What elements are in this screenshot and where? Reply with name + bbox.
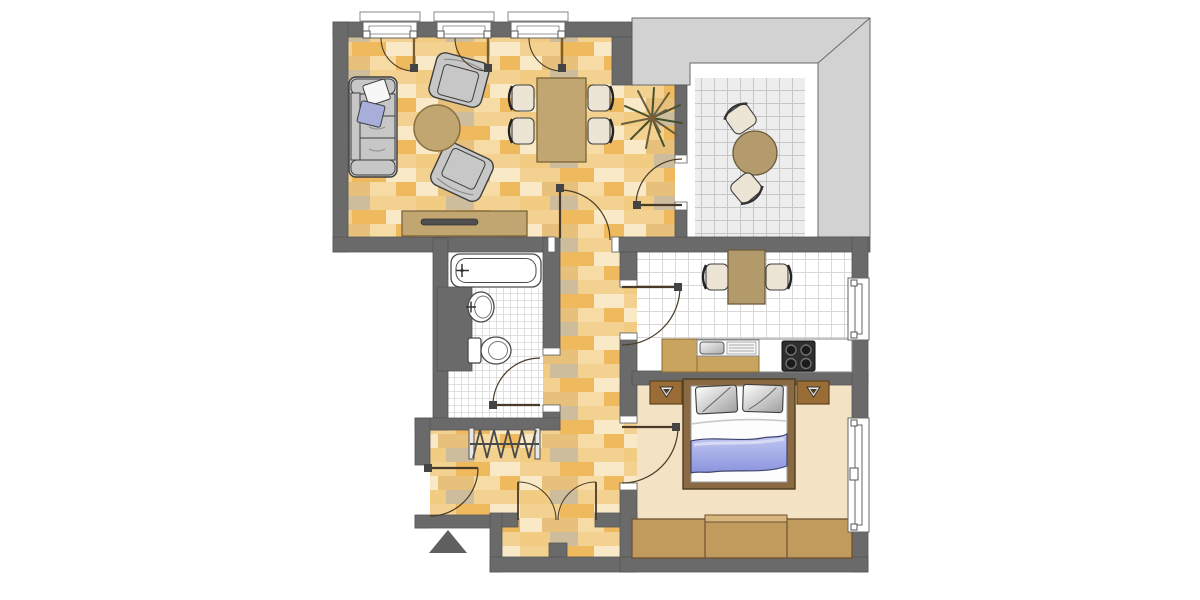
living-room-nook-floor — [612, 85, 675, 237]
sideboard — [402, 211, 527, 236]
window-kitchen — [848, 278, 869, 340]
dining-chair — [509, 118, 534, 144]
entrance-arrow-icon — [429, 530, 467, 553]
balcony-table — [733, 131, 777, 175]
bathroom-door-threshold — [543, 355, 560, 405]
wall-living-west — [333, 22, 348, 252]
living-room-door-threshold — [555, 237, 612, 252]
window-bedroom — [848, 418, 869, 532]
coffee-table — [414, 105, 460, 151]
wardrobe — [632, 515, 852, 558]
bed-pillow — [743, 384, 784, 412]
dining-chair — [509, 85, 534, 111]
kitchen-cabinet — [662, 339, 697, 372]
double-bed — [683, 379, 795, 489]
bath-duct-block — [437, 287, 472, 371]
wall-entrance-south — [415, 515, 502, 528]
sideboard-handle — [421, 219, 478, 225]
bedroom-door-threshold — [620, 423, 637, 483]
wall-living-step — [612, 37, 632, 85]
wall-closet-south — [490, 557, 637, 572]
dining-chair — [588, 85, 613, 111]
bathtub — [451, 254, 541, 287]
nightstand-right — [797, 381, 829, 404]
kitchen-cabinet — [697, 356, 759, 372]
kitchen-sink — [697, 340, 759, 356]
wall-living-east-upper — [675, 85, 687, 163]
kitchen-chair — [766, 264, 791, 290]
sofa — [349, 77, 397, 177]
wall-bath-east-upper — [543, 238, 560, 355]
kitchen-counter — [662, 339, 852, 372]
toilet — [468, 337, 511, 364]
hallway-floor — [560, 252, 620, 557]
bed-pillow — [695, 385, 737, 414]
kitchen-chair — [703, 264, 728, 290]
stove — [782, 341, 815, 371]
kitchen-door-threshold — [620, 287, 637, 333]
wardrobe-front-panel — [705, 515, 787, 522]
wall-bedroom-south — [620, 557, 868, 572]
wall-entrance-west-upper — [415, 418, 430, 465]
wall-closet-top-left — [502, 513, 518, 527]
floor-plan — [0, 0, 1200, 600]
wall-closet-divider — [549, 543, 567, 557]
nightstand-left — [650, 381, 682, 404]
floor-plan-drawing — [0, 0, 1200, 600]
dining-table — [537, 78, 586, 162]
kitchen-table — [728, 250, 765, 304]
dining-chair — [588, 118, 613, 144]
